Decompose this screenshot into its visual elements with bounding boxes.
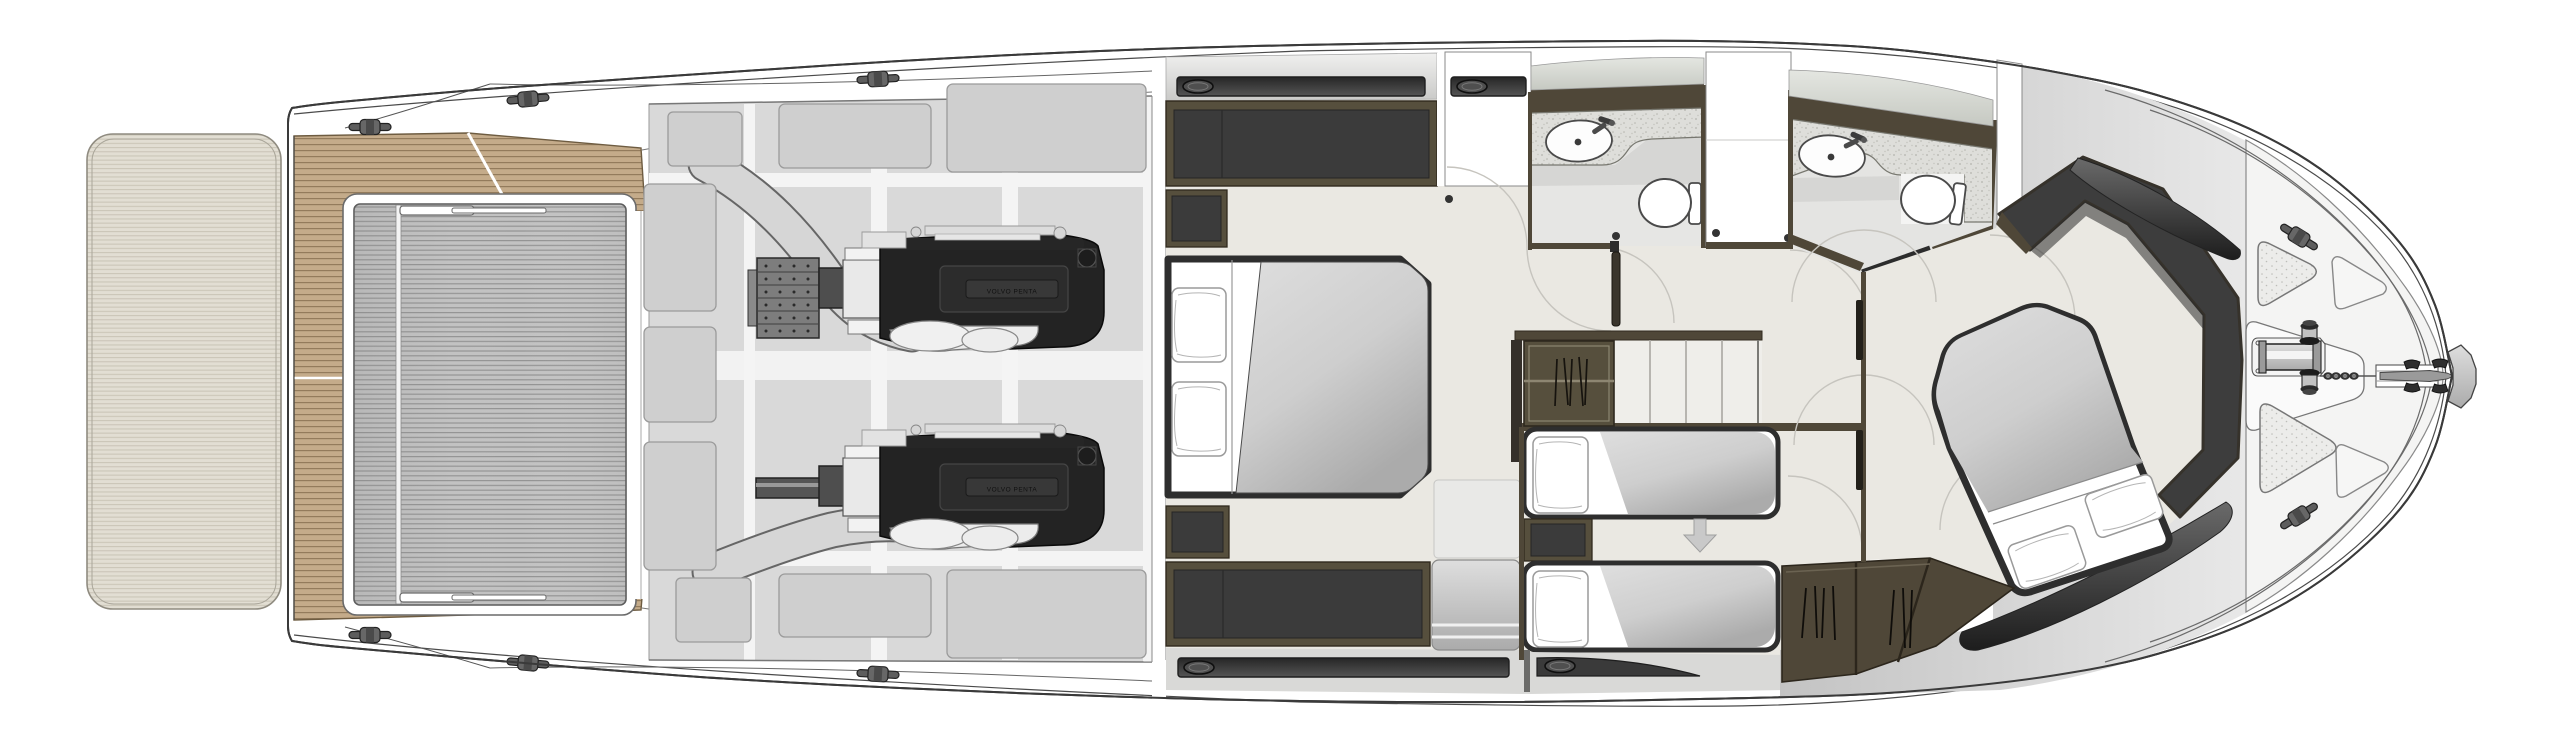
svg-text:VOLVO PENTA: VOLVO PENTA (987, 487, 1038, 494)
svg-text:VOLVO PENTA: VOLVO PENTA (987, 289, 1038, 296)
